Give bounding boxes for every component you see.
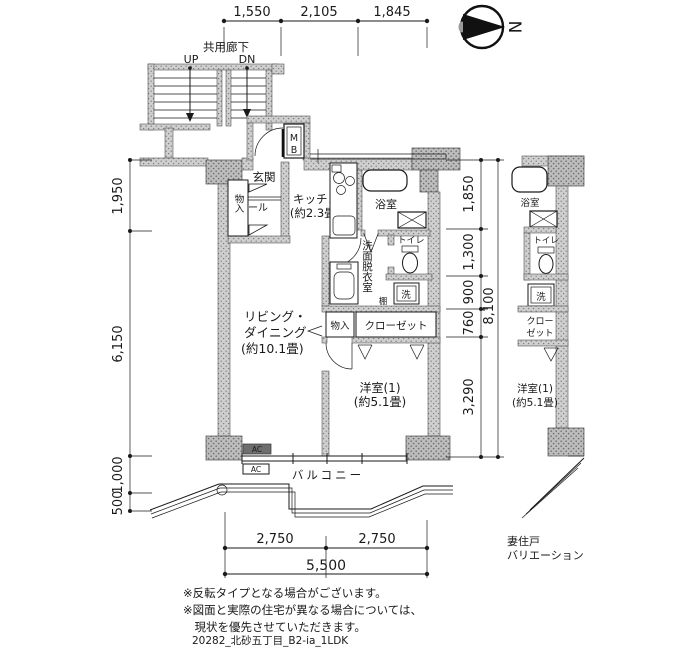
- mini-western-room-size: (約5.1畳): [512, 396, 558, 409]
- floor-plan-page: N 1,550 2,105 1,845 共用廊下 UP DN: [0, 0, 700, 650]
- toilet-room: トイレ: [397, 236, 424, 273]
- closet-label: クローゼット: [365, 320, 428, 332]
- mini-bathtub: [512, 167, 547, 192]
- dim-right-4: 760: [462, 311, 477, 336]
- compass: N: [459, 6, 525, 48]
- washer-box: 洗: [394, 283, 419, 304]
- dim-top-1: 1,550: [233, 5, 270, 20]
- living-leader-arrow-icon: [308, 326, 322, 336]
- dim-bottom-total: 5,500: [306, 558, 346, 574]
- entrance-door-swing: [255, 128, 283, 156]
- washroom-label: 洗面脱衣室: [361, 240, 373, 293]
- toilet-tank: [402, 246, 418, 252]
- dim-top-3: 1,845: [373, 5, 410, 20]
- bottom-dimensions: 2,750 2,750 5,500: [223, 512, 429, 578]
- mini-closet-label-2: ゼット: [526, 327, 553, 339]
- stairwell: 共用廊下 UP DN: [140, 40, 284, 158]
- mini-toilet-tank: [538, 247, 554, 253]
- dim-bottom-1: 2,750: [256, 532, 293, 547]
- kitchen-counter: [330, 163, 357, 238]
- left-dimensions: 1,950 6,150 1,000 500: [111, 158, 152, 515]
- dim-right-5: 3,290: [462, 378, 477, 415]
- balcony: バルコニー: [150, 468, 453, 518]
- column-bottom-left: [206, 436, 242, 460]
- shelf-label: 棚: [379, 296, 388, 307]
- mini-closet-label-1: クロー: [526, 316, 553, 327]
- dim-left-2: 6,150: [111, 325, 126, 362]
- dim-right-total: 8,100: [482, 287, 497, 324]
- mini-toilet-label: トイレ: [533, 236, 559, 246]
- western-room-size: (約5.1畳): [354, 394, 406, 409]
- mini-column-bottom: [548, 428, 584, 456]
- mini-bath-label: 浴室: [520, 197, 539, 209]
- mini-plan: 浴室 トイレ 洗 クロー ゼット 洋室(1) (約5.1畳): [507, 156, 584, 562]
- stairs-dn-arrow-icon: [243, 66, 251, 118]
- washer-label: 洗: [401, 289, 411, 301]
- entrance-label: 玄関: [253, 170, 276, 184]
- note-line-1: ※反転タイプとなる場合がございます。: [183, 586, 387, 600]
- western-door-swing: [326, 343, 352, 369]
- floor-plan-drawing: N 1,550 2,105 1,845 共用廊下 UP DN: [0, 0, 700, 650]
- living-label-2: ダイニング: [244, 325, 307, 340]
- mini-washer-box: 洗: [528, 284, 554, 306]
- north-arrow-icon: [463, 14, 505, 40]
- mini-caption-2: バリエーション: [507, 549, 584, 562]
- ac-unit-outdoor: AC: [243, 464, 269, 474]
- compass-north-label: N: [504, 21, 524, 34]
- washroom: 洗面脱衣室 洗 棚: [330, 238, 419, 307]
- living-label-1: リビング・: [244, 309, 307, 324]
- mini-toilet-bowl: [539, 255, 553, 274]
- meter-box-m: M: [290, 133, 298, 144]
- bath-label: 浴室: [375, 197, 397, 211]
- notes: ※反転タイプとなる場合がございます。 ※図面と実際の住宅が異なる場合については、…: [183, 586, 422, 634]
- mini-western-room-label: 洋室(1): [517, 382, 553, 395]
- mini-shaft-box: [530, 211, 557, 227]
- plan-id: 20282_北砂五丁目_B2-ia_1LDK: [192, 634, 349, 647]
- mini-washer-label: 洗: [536, 291, 546, 303]
- note-line-2: ※図面と実際の住宅が異なる場合については、: [183, 603, 422, 617]
- top-dimensions: 1,550 2,105 1,845: [222, 5, 429, 56]
- ac-label: AC: [252, 445, 262, 454]
- meter-box-b: B: [291, 145, 298, 156]
- dim-right-1: 1,850: [462, 175, 477, 212]
- storage-door-icon: [249, 184, 267, 192]
- wall-living-western: [322, 371, 329, 456]
- living-storage-label: 物入: [330, 320, 350, 332]
- living-dining: リビング・ ダイニング (約10.1畳): [241, 309, 322, 356]
- mini-balcony-railing: [522, 456, 584, 518]
- hanger-pipe-icon: [410, 345, 424, 359]
- balcony-label: バルコニー: [292, 468, 364, 482]
- right-dimensions: 1,850 1,300 900 760 3,290 8,100: [446, 158, 504, 459]
- dim-left-4: 500: [111, 491, 126, 516]
- ac-label: AC: [251, 465, 261, 474]
- bathtub: [363, 170, 407, 191]
- dim-bottom-2: 2,750: [358, 532, 395, 547]
- living-size-label: (約10.1畳): [241, 341, 304, 356]
- dim-right-2: 1,300: [462, 233, 477, 270]
- storage-door-icon: [249, 225, 267, 235]
- balcony-drain-icon: [217, 485, 227, 495]
- western-room: 洋室(1) (約5.1畳): [354, 380, 406, 409]
- toilet-bowl: [403, 253, 418, 273]
- wash-basin: [330, 262, 358, 304]
- corridor-label: 共用廊下: [203, 40, 249, 54]
- dim-right-3: 900: [462, 280, 477, 305]
- dim-left-3: 1,000: [111, 456, 126, 493]
- ac-unit-indoor: AC: [243, 444, 271, 454]
- kitchen: キッチン (約2.3畳): [290, 163, 357, 238]
- note-line-3: 現状を優先させていただきます。: [183, 620, 366, 634]
- mini-caption-1: 妻住戸: [507, 534, 540, 548]
- toilet-label: トイレ: [397, 236, 424, 246]
- hanger-pipe-icon: [358, 345, 372, 359]
- western-room-label: 洋室(1): [360, 380, 401, 395]
- dim-left-1: 1,950: [111, 177, 126, 214]
- column-bottom-right: [406, 436, 450, 460]
- dim-top-2: 2,105: [300, 5, 337, 20]
- entrance-storage-label: 物入: [233, 193, 245, 213]
- shaft-box: [398, 212, 426, 228]
